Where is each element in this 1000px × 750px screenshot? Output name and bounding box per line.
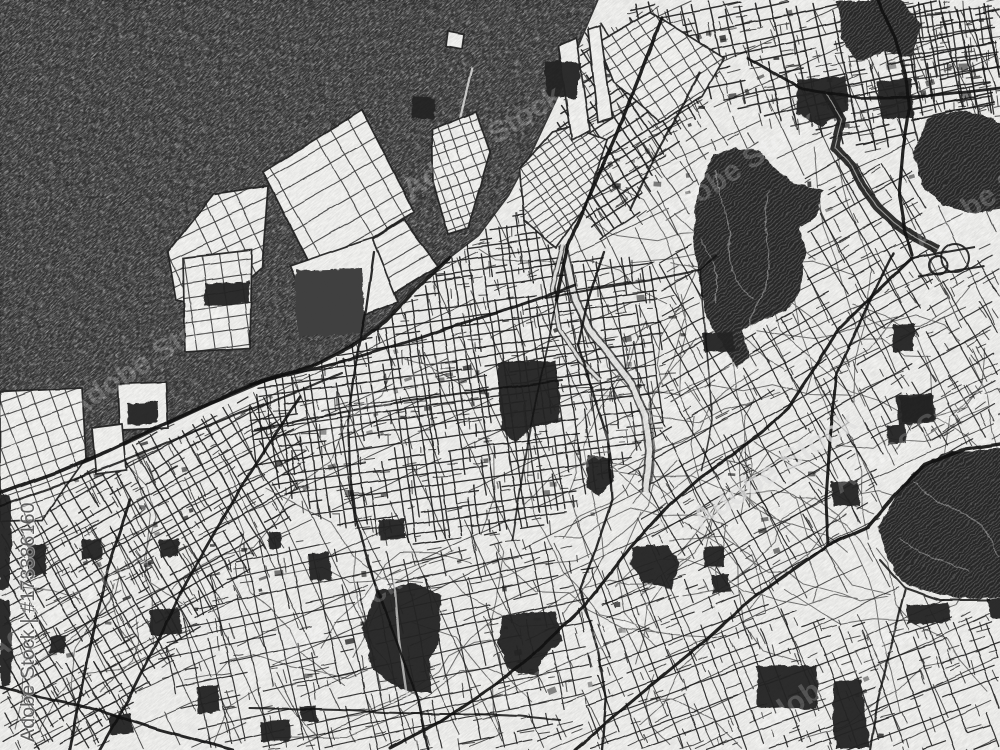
svg-text:Adobe Stock | #173386160: Adobe Stock | #173386160	[17, 502, 39, 742]
